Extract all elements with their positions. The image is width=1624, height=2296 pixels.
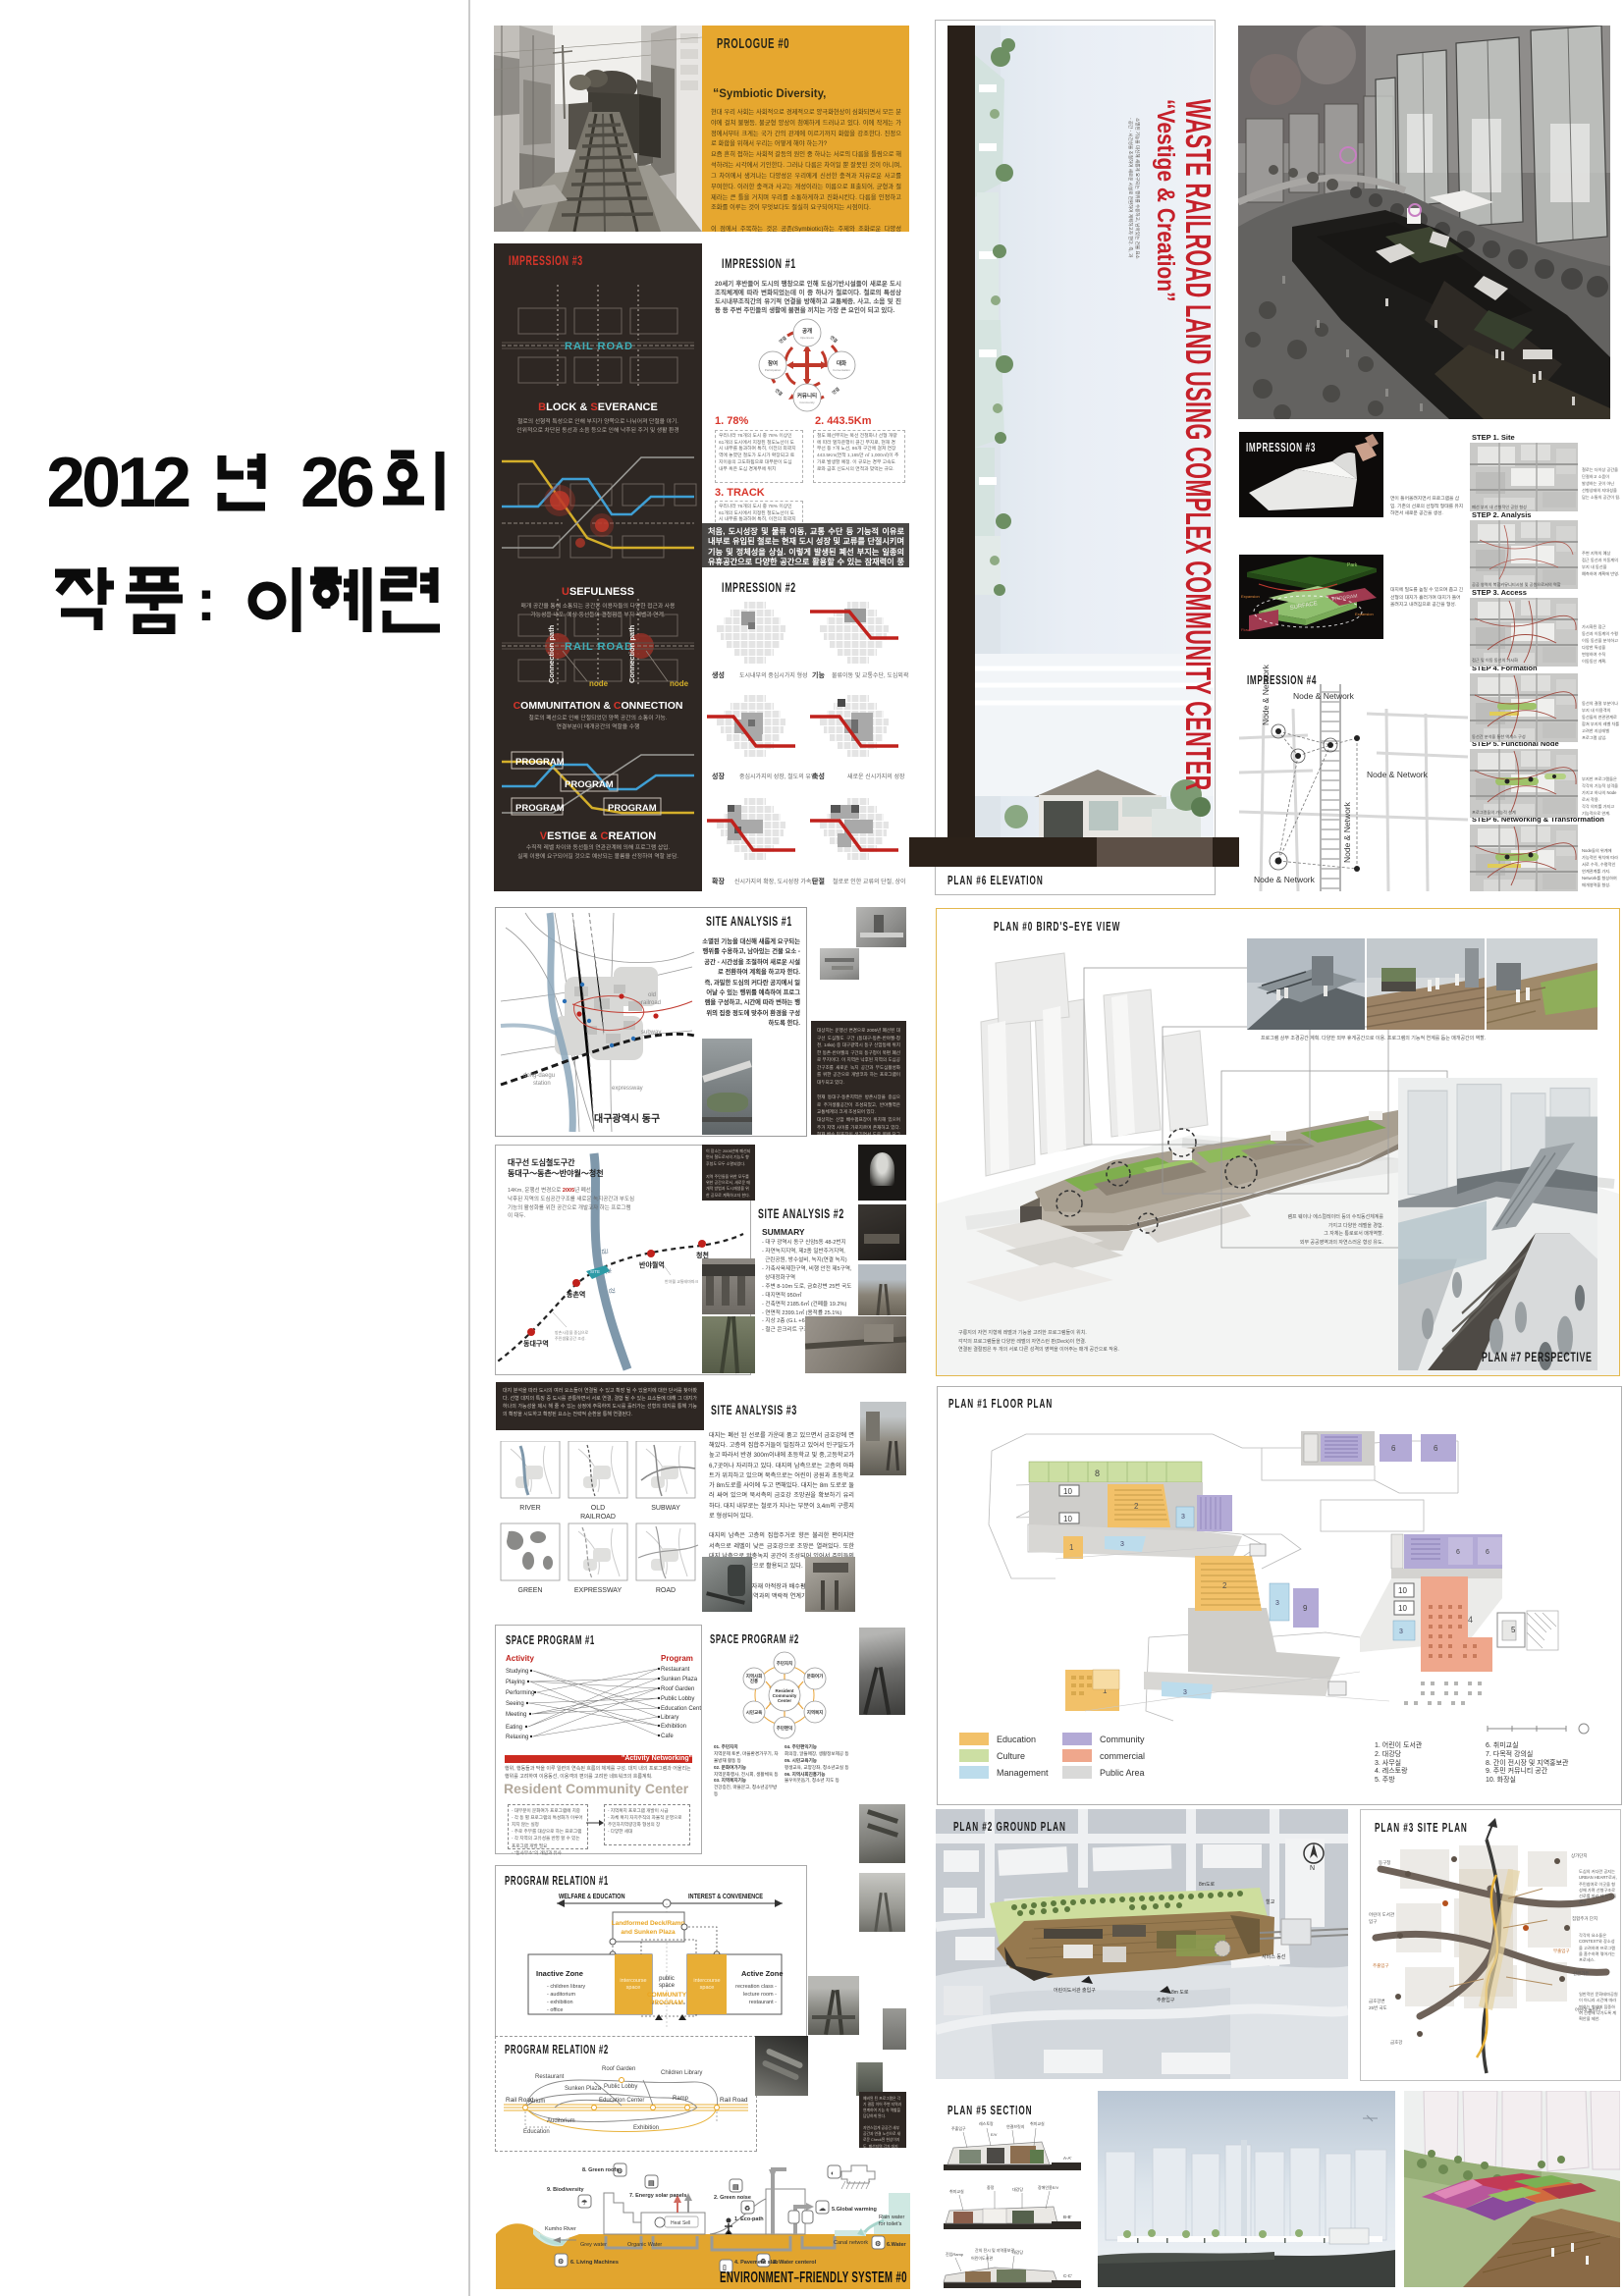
svg-text::: : <box>196 567 216 633</box>
svg-text:연결브릿지: 연결브릿지 <box>1006 2123 1025 2129</box>
svg-text:어린이 도서관: 어린이 도서관 <box>1369 1911 1394 1918</box>
svg-text:9. Biodiversity: 9. Biodiversity <box>547 2187 585 2193</box>
svg-text:PROGRAM: PROGRAM <box>650 2000 683 2006</box>
svg-text:입구: 입구 <box>1369 1918 1377 1925</box>
svg-text:public: public <box>659 1976 675 1982</box>
svg-text:PROGRAM: PROGRAM <box>515 757 565 768</box>
svg-text:recreation class -: recreation class - <box>735 1984 777 1990</box>
svg-text:방촌시장을 중심으로: 방촌시장을 중심으로 <box>555 1329 589 1335</box>
svg-text:Sunken Plaza: Sunken Plaza <box>661 1677 698 1682</box>
svg-text:Atrium: Atrium <box>528 2099 545 2105</box>
svg-text:and Sunken Plaza: and Sunken Plaza <box>621 1929 676 1936</box>
svg-text:철로의 폐선으로 인해 단절되었던 양쪽 공간의 소통이 가: 철로의 폐선으로 인해 단절되었던 양쪽 공간의 소통이 가능. <box>529 714 668 721</box>
svg-text:동구청: 동구청 <box>1379 1860 1390 1866</box>
svg-text:ROAD: ROAD <box>656 1587 676 1594</box>
svg-text:3: 3 <box>1275 1600 1279 1607</box>
svg-text:다양한 특성을: 다양한 특성을 <box>1582 644 1605 651</box>
svg-text:공공 영역의 복합커뮤니티시설 및 공원으로서의 역할: 공공 영역의 복합커뮤니티시설 및 공원으로서의 역할 <box>1472 581 1561 588</box>
svg-text:- office: - office <box>547 2007 563 2013</box>
svg-text:접근 동선과 이동계의: 접근 동선과 이동계의 <box>1582 557 1618 563</box>
svg-text:node: node <box>670 679 689 688</box>
svg-text:반야월역: 반야월역 <box>639 1260 665 1269</box>
svg-text:금호강변: 금호강변 <box>1369 1998 1385 2003</box>
svg-text:Organic Water: Organic Water <box>627 2242 662 2248</box>
svg-text:기능적으로 연계.: 기능적으로 연계. <box>1582 810 1610 817</box>
svg-text:INTEREST & CONVENIENCE: INTEREST & CONVENIENCE <box>688 1893 764 1900</box>
svg-text:PROGRAM: PROGRAM <box>565 779 614 790</box>
svg-text:Rail Road: Rail Road <box>720 2097 748 2104</box>
svg-text:Library: Library <box>661 1715 678 1721</box>
svg-text:☁: ☁ <box>819 2206 826 2213</box>
svg-text:가시화된 접근: 가시화된 접근 <box>1582 623 1605 630</box>
svg-text:Sunken Plaza: Sunken Plaza <box>565 2086 602 2092</box>
svg-text:부지만 프로그램들은: 부지만 프로그램들은 <box>1582 775 1617 782</box>
svg-text:USEFULNESS: USEFULNESS <box>562 586 634 598</box>
svg-text:▤: ▤ <box>732 2184 739 2191</box>
svg-text:5.Global warming: 5.Global warming <box>832 2207 877 2213</box>
svg-text:장애인용E/V: 장애인용E/V <box>1038 2184 1058 2190</box>
svg-text:Heat Sell: Heat Sell <box>671 2220 690 2226</box>
svg-text:물류이동 및 교통수단, 도심외곽지: 물류이동 및 교통수단, 도심외곽지 <box>832 671 909 679</box>
svg-text:생성: 생성 <box>712 670 725 679</box>
svg-text:Node & Network: Node & Network <box>1293 691 1355 701</box>
svg-text:1: 1 <box>1069 1543 1074 1552</box>
svg-text:진흥: 진흥 <box>750 1678 758 1684</box>
svg-text:프로그램 삽입.: 프로그램 삽입. <box>1582 734 1606 740</box>
svg-text:프로그램들의 가능적 설계: 프로그램들의 가능적 설계 <box>1472 809 1516 816</box>
svg-text:Education Center: Education Center <box>661 1706 701 1712</box>
svg-text:Node들의 위계에: Node들의 위계에 <box>1582 847 1612 854</box>
svg-text:부지 내 동선을: 부지 내 동선을 <box>1582 563 1607 570</box>
svg-text:새로운 신시가지의 성장: 새로운 신시가지의 성장 <box>847 773 905 780</box>
svg-text:6: 6 <box>1391 1444 1396 1453</box>
svg-text:취미교실: 취미교실 <box>949 2188 964 2194</box>
svg-text:축성: 축성 <box>812 772 825 780</box>
svg-text:25번 국도: 25번 국도 <box>1369 2004 1387 2011</box>
svg-text:부출입구: 부출입구 <box>1553 1948 1570 1954</box>
svg-text:1. Eco-path: 1. Eco-path <box>734 2216 764 2222</box>
svg-text:동선과 이동계의 수평: 동선과 이동계의 수평 <box>1582 630 1618 637</box>
svg-text:⚙: ⚙ <box>558 2258 564 2266</box>
svg-text:for toilet's: for toilet's <box>879 2221 902 2227</box>
svg-text:space: space <box>700 1985 715 1991</box>
svg-text:연결부분이 매개공간의 역할을 수행: 연결부분이 매개공간의 역할을 수행 <box>557 722 640 730</box>
svg-text:주민자치: 주민자치 <box>777 1660 793 1667</box>
svg-text:6. Living Machines: 6. Living Machines <box>570 2260 619 2266</box>
svg-text:2. Green noise: 2. Green noise <box>714 2195 751 2201</box>
svg-text:Node & Network: Node & Network <box>1367 770 1429 779</box>
svg-text:참여: 참여 <box>768 359 778 367</box>
svg-text:담는 소통의 공간이 됨.: 담는 소통의 공간이 됨. <box>1582 494 1620 501</box>
svg-text:STEP 1. Site: STEP 1. Site <box>1472 433 1515 442</box>
svg-text:확장: 확장 <box>712 877 725 885</box>
svg-text:26: 26 <box>300 450 373 514</box>
svg-text:Playing: Playing <box>506 1680 525 1685</box>
svg-text:Grey water: Grey water <box>580 2242 607 2248</box>
svg-text:station: station <box>533 1081 551 1087</box>
svg-text:Connection path: Connection path <box>627 624 636 683</box>
svg-text:Restaurant: Restaurant <box>535 2074 565 2080</box>
svg-text:Landformed Deck/Ramp: Landformed Deck/Ramp <box>612 1920 685 1927</box>
svg-text:Canal network: Canal network <box>834 2240 868 2246</box>
svg-text:중정: 중정 <box>987 2184 995 2190</box>
svg-text:주민편익: 주민편익 <box>777 1725 793 1732</box>
svg-text:선큰가든: 선큰가든 <box>1573 1970 1590 1977</box>
svg-text:가능적인 위치에 따라: 가능적인 위치에 따라 <box>1582 854 1618 861</box>
svg-text:로서 작용.: 로서 작용. <box>1582 796 1599 803</box>
svg-text:Inactive Zone: Inactive Zone <box>536 1969 583 1978</box>
svg-text:집합주거 단지: 집합주거 단지 <box>1572 1915 1597 1922</box>
svg-text:발생하는 곳이 아닌: 발생하는 곳이 아닌 <box>1582 480 1614 487</box>
svg-text:Performing: Performing <box>506 1690 534 1696</box>
svg-text:PROGRAM: PROGRAM <box>608 803 657 814</box>
svg-text:선형상태의 지대성을: 선형상태의 지대성을 <box>1582 487 1617 494</box>
svg-text:6: 6 <box>1456 1549 1460 1556</box>
svg-text:철로의 선형적 특성으로 인해 부지가 양쪽으로 나뉘어져: 철로의 선형적 특성으로 인해 부지가 양쪽으로 나뉘어져 단절을 야기. <box>517 417 678 425</box>
svg-text:Center: Center <box>778 1698 792 1703</box>
svg-text:9: 9 <box>1303 1604 1308 1613</box>
svg-text:성장: 성장 <box>712 772 725 780</box>
svg-text:반야월 교통테마파크: 반야월 교통테마파크 <box>665 1278 699 1284</box>
svg-text:Ramp: Ramp <box>673 2096 689 2102</box>
svg-text:8m도로: 8m도로 <box>1199 1882 1216 1888</box>
svg-text:이동 동선을 분석하고: 이동 동선을 분석하고 <box>1582 637 1618 644</box>
svg-text:7. Energy solar panels: 7. Energy solar panels <box>629 2193 686 2199</box>
svg-text:SUBWAY: SUBWAY <box>651 1505 680 1512</box>
svg-text:- auditorium: - auditorium <box>547 1992 575 1998</box>
svg-text:2012: 2012 <box>49 450 189 514</box>
svg-text:BLOCK & SEVERANCE: BLOCK & SEVERANCE <box>538 401 658 413</box>
svg-text:Community: Community <box>799 400 815 404</box>
svg-text:space: space <box>659 1983 676 1989</box>
svg-text:서비스 동선: 서비스 동선 <box>1262 1953 1286 1960</box>
svg-text:3: 3 <box>1181 1514 1185 1521</box>
svg-text:예측하여 계획에 반영.: 예측하여 계획에 반영. <box>1582 570 1619 577</box>
svg-text:Node & Network: Node & Network <box>1261 664 1271 725</box>
svg-text:Exhibition: Exhibition <box>633 2125 659 2131</box>
svg-text:Children Library: Children Library <box>661 2070 702 2076</box>
svg-text:- exhibition: - exhibition <box>547 2000 573 2005</box>
svg-text:COMMUNITATION & CONNECTION: COMMUNITATION & CONNECTION <box>514 700 683 712</box>
svg-text:N: N <box>1310 1865 1315 1872</box>
svg-text:Participation: Participation <box>765 368 782 372</box>
svg-text:10: 10 <box>1398 1586 1407 1595</box>
svg-text:Public Lobby: Public Lobby <box>604 2084 637 2090</box>
svg-text:6: 6 <box>1434 1444 1438 1453</box>
svg-text:Restaurant: Restaurant <box>661 1667 690 1673</box>
svg-text:레스토랑: 레스토랑 <box>979 2120 994 2126</box>
svg-text:신시가지의 확장, 도시성장 가속화: 신시가지의 확장, 도시성장 가속화 <box>734 878 817 885</box>
svg-text:Education: Education <box>523 2129 550 2135</box>
svg-text:3: 3 <box>1183 1689 1187 1696</box>
svg-text:dong-daegu: dong-daegu <box>523 1073 555 1079</box>
svg-text:간의 전시 및 지역홍보관: 간의 전시 및 지역홍보관 <box>975 2247 1014 2253</box>
svg-text:Node & Network: Node & Network <box>1342 801 1352 863</box>
svg-text:주출입구: 주출입구 <box>951 2125 966 2131</box>
svg-text:합쳐 부지의 레벨 차를: 합쳐 부지의 레벨 차를 <box>1582 721 1619 727</box>
svg-text:subway: subway <box>641 1030 661 1036</box>
svg-text:기능: 기능 <box>812 670 825 679</box>
svg-text:주변 지역의 예상: 주변 지역의 예상 <box>1582 550 1610 557</box>
svg-text:Expansion: Expansion <box>1355 612 1374 616</box>
svg-text:B-B': B-B' <box>1063 2215 1072 2219</box>
svg-text:Park: Park <box>1347 562 1358 568</box>
svg-text:WELFARE & EDUCATION: WELFARE & EDUCATION <box>559 1893 625 1900</box>
svg-text:시민교육: 시민교육 <box>746 1709 763 1716</box>
svg-text:3. Water centerol: 3. Water centerol <box>773 2260 817 2266</box>
svg-text:단절: 단절 <box>812 877 825 885</box>
svg-text:E/V: E/V <box>991 2132 998 2137</box>
svg-text:restaurant -: restaurant - <box>749 2000 777 2005</box>
svg-text:Program: Program <box>661 1654 693 1663</box>
svg-text:대화: 대화 <box>837 359 846 367</box>
svg-text:어린이도서관: 어린이도서관 <box>971 2255 993 2261</box>
svg-text:도시내부의 중심시가지 형성: 도시내부의 중심시가지 형성 <box>739 671 808 679</box>
svg-text:8m 도로: 8m 도로 <box>1171 1990 1189 1996</box>
svg-text:expressway: expressway <box>612 1086 643 1092</box>
svg-text:Activity: Activity <box>506 1654 534 1663</box>
svg-text:▤: ▤ <box>648 2180 655 2187</box>
svg-text:5: 5 <box>1511 1626 1516 1634</box>
svg-text:Roof Garden: Roof Garden <box>602 2066 635 2072</box>
svg-text:3: 3 <box>1399 1629 1403 1635</box>
svg-text:연계관계를 가지.: 연계관계를 가지. <box>1582 868 1610 875</box>
svg-text:동촌역: 동촌역 <box>567 1290 585 1299</box>
svg-text:⚙: ⚙ <box>875 2240 881 2248</box>
svg-text:변영하여 수직: 변영하여 수직 <box>1582 651 1605 658</box>
svg-text:node: node <box>589 679 609 688</box>
svg-text:Node & Network: Node & Network <box>1254 875 1316 884</box>
svg-text:GREEN: GREEN <box>518 1587 543 1594</box>
svg-text:◐: ◐ <box>831 2170 835 2177</box>
svg-text:IMPRESSION #3: IMPRESSION #3 <box>509 253 583 269</box>
svg-text:- children library: - children library <box>547 1984 585 1990</box>
svg-text:old: old <box>648 992 656 998</box>
svg-text:커뮤니티: 커뮤니티 <box>797 392 817 400</box>
svg-text:railroad: railroad <box>641 1000 661 1006</box>
svg-text:각각의 기능적 성격을: 각각의 기능적 성격을 <box>1582 782 1618 789</box>
svg-text:인위적으로 차단된 동선과 소음 등으로 인해 낙후된 주거: 인위적으로 차단된 동선과 소음 등으로 인해 낙후된 주거 및 생활 환경 <box>516 426 678 434</box>
svg-text:intercourse: intercourse <box>693 1978 720 1984</box>
svg-text:연결: 연결 <box>829 334 839 345</box>
svg-text:8. Green roofs: 8. Green roofs <box>582 2167 619 2173</box>
svg-text:상가단지: 상가단지 <box>1571 1852 1588 1859</box>
svg-text:Conversation: Conversation <box>833 368 850 372</box>
svg-text:COMMUNITY: COMMUNITY <box>647 1992 687 1999</box>
svg-text:단절하고 소음이: 단절하고 소음이 <box>1582 473 1609 480</box>
svg-text:Openness: Openness <box>800 336 814 340</box>
svg-text:부지 내 이용객의: 부지 내 이용객의 <box>1582 707 1610 714</box>
svg-text:lecture room -: lecture room - <box>743 1992 777 1998</box>
svg-text:주출입구: 주출입구 <box>1373 1962 1389 1969</box>
svg-text:Eating: Eating <box>506 1725 522 1731</box>
svg-text:EXPRESSWAY: EXPRESSWAY <box>574 1587 623 1594</box>
svg-text:문화여가: 문화여가 <box>807 1673 824 1680</box>
svg-text:Meeting: Meeting <box>506 1712 526 1718</box>
svg-text:RAIL ROAD: RAIL ROAD <box>565 641 633 653</box>
svg-text:SITE: SITE <box>590 1269 600 1274</box>
svg-text:PROGRAM: PROGRAM <box>515 803 565 814</box>
svg-text:대강당: 대강당 <box>1012 2186 1023 2192</box>
svg-text:대구광역시 동구: 대구광역시 동구 <box>594 1112 660 1125</box>
svg-text:☂: ☂ <box>581 2199 588 2207</box>
svg-text:동대구역: 동대구역 <box>523 1339 549 1348</box>
svg-text:주민생활공간 조성.: 주민생활공간 조성. <box>555 1335 586 1341</box>
svg-text:지역복지: 지역복지 <box>807 1709 824 1716</box>
svg-text:Studying: Studying <box>506 1669 528 1675</box>
svg-text:Relaxing: Relaxing <box>506 1735 528 1740</box>
svg-text:Active Zone: Active Zone <box>741 1969 784 1978</box>
svg-text:Network를 형성하여: Network를 형성하여 <box>1582 875 1617 881</box>
svg-text:Flow: Flow <box>1241 627 1250 632</box>
svg-text:8: 8 <box>1095 1468 1100 1478</box>
svg-text:Expansion: Expansion <box>1241 594 1260 599</box>
svg-text:10: 10 <box>1398 1604 1407 1613</box>
svg-text:동선들의 연관관계로: 동선들의 연관관계로 <box>1582 714 1617 721</box>
svg-text:철교: 철교 <box>1266 1898 1275 1905</box>
svg-text:10: 10 <box>1063 1487 1072 1496</box>
svg-text:고려한 지상레벨: 고려한 지상레벨 <box>1582 727 1609 734</box>
svg-text:4: 4 <box>1468 1615 1473 1625</box>
svg-text:ENVIRONMENT–FRIENDLY SYSTEM #: ENVIRONMENT–FRIENDLY SYSTEM #0 <box>720 2269 907 2286</box>
svg-text:이동동선 계획.: 이동동선 계획. <box>1582 658 1606 665</box>
svg-text:Auditorium: Auditorium <box>547 2118 575 2124</box>
svg-text:중심시가지의 성장, 철도의 유입: 중심시가지의 성장, 철도의 유입 <box>739 773 816 780</box>
svg-text:대강당: 대강당 <box>1012 2249 1023 2255</box>
svg-text:A-A': A-A' <box>1063 2156 1072 2161</box>
svg-text:6: 6 <box>1486 1549 1489 1556</box>
svg-text:RAIL ROAD: RAIL ROAD <box>565 341 633 352</box>
svg-text:RAILROAD: RAILROAD <box>580 1514 616 1521</box>
svg-text:매개영역을 형성.: 매개영역을 형성. <box>1582 881 1610 888</box>
svg-text:C-C': C-C' <box>1063 2273 1072 2278</box>
svg-text:Roof Garden: Roof Garden <box>661 1686 694 1692</box>
svg-text:10: 10 <box>1063 1515 1072 1523</box>
svg-text:Exhibition: Exhibition <box>661 1724 686 1730</box>
svg-text:OLD: OLD <box>591 1505 605 1512</box>
svg-text:Cafe: Cafe <box>661 1734 674 1739</box>
svg-text:Public Lobby: Public Lobby <box>661 1696 694 1702</box>
svg-text:RIVER: RIVER <box>519 1505 540 1512</box>
svg-text:Education Center: Education Center <box>599 2098 644 2104</box>
svg-text:동선간 분석을 통한 액세스 구성: 동선간 분석을 통한 액세스 구성 <box>1472 733 1526 740</box>
svg-text:각각 의미를 가지고: 각각 의미를 가지고 <box>1582 803 1614 810</box>
svg-text:폐선 부지 내 선형적인 공원 형성: 폐선 부지 내 선형적인 공원 형성 <box>1472 504 1527 510</box>
svg-text:space: space <box>626 1985 641 1991</box>
svg-text:접근 및 이동 동선의 가시화: 접근 및 이동 동선의 가시화 <box>1472 657 1518 664</box>
svg-text:Rain water: Rain water <box>879 2215 904 2220</box>
svg-text:STEP 2. Analysis: STEP 2. Analysis <box>1472 510 1531 519</box>
svg-text:진입Ramp: 진입Ramp <box>946 2251 964 2257</box>
svg-text:6.Water: 6.Water <box>887 2242 907 2248</box>
svg-text:연결: 연결 <box>778 335 788 346</box>
svg-text:주출입구: 주출입구 <box>1157 1997 1175 2003</box>
svg-text:♻: ♻ <box>744 2205 750 2213</box>
svg-text:연결: 연결 <box>831 386 841 397</box>
svg-text:STEP 3. Access: STEP 3. Access <box>1472 588 1527 597</box>
svg-text:금호강: 금호강 <box>1390 2039 1402 2045</box>
svg-text:서로 수직, 수평적인: 서로 수직, 수평적인 <box>1582 861 1615 868</box>
svg-text:철로는 더이상 공간을: 철로는 더이상 공간을 <box>1582 466 1618 473</box>
svg-text:공개: 공개 <box>802 327 812 335</box>
svg-text:Seeing: Seeing <box>506 1701 524 1707</box>
svg-text:Connection path: Connection path <box>547 624 556 683</box>
svg-text:취미교실: 취미교실 <box>1030 2120 1045 2126</box>
svg-text:2: 2 <box>1134 1502 1139 1511</box>
svg-text:어린이도서관 출입구: 어린이도서관 출입구 <box>1054 1987 1096 1994</box>
svg-text:intercourse: intercourse <box>620 1978 646 1984</box>
svg-text:철로로 인한 교류의 단절, 상이: 철로로 인한 교류의 단절, 상이 <box>833 878 906 885</box>
svg-text:동선의 결절 부분이나: 동선의 결절 부분이나 <box>1582 700 1618 707</box>
svg-text:연결: 연결 <box>774 387 785 398</box>
svg-text:Kumho River: Kumho River <box>545 2226 576 2232</box>
svg-text:가지고 하나의 Node: 가지고 하나의 Node <box>1582 789 1617 796</box>
svg-text:2: 2 <box>1222 1581 1227 1590</box>
svg-text:3: 3 <box>1120 1541 1124 1548</box>
